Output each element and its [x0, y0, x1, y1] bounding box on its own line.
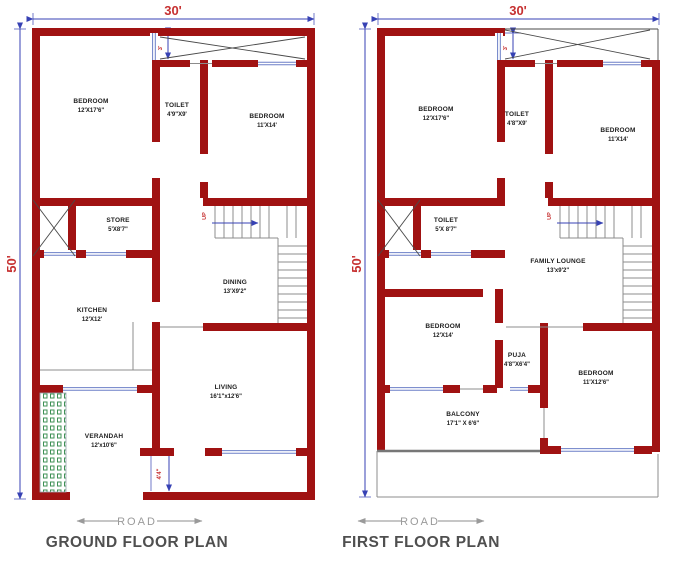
ground-footer: ROAD GROUND FLOOR PLAN	[46, 516, 228, 551]
room-label: KITCHEN	[77, 307, 107, 314]
room-label: BEDROOM	[600, 127, 635, 134]
ground-width-dimension: 30'	[164, 3, 182, 18]
room-dims: 12'x10'6"	[91, 443, 117, 449]
room-dims: 5'X8'7"	[108, 227, 128, 233]
floor-plan-drawing: 30' 50' 3' 4'4"	[0, 0, 685, 565]
ground-open-terrace-cross	[160, 37, 305, 59]
ground-up-label: UP	[202, 212, 208, 220]
floor-plan-canvas: 30' 50' 3' 4'4"	[0, 0, 685, 565]
ground-height-dimension: 50'	[4, 255, 19, 273]
room-label: TOILET	[505, 111, 529, 118]
first-height-dimension: 50'	[349, 255, 364, 273]
ground-floor-title: GROUND FLOOR PLAN	[46, 534, 228, 551]
first-room-labels: BEDROOM 12'X17'6" TOILET 4'8"X9' BEDROOM…	[418, 106, 635, 427]
room-dims: 4'8"X9'	[507, 121, 527, 127]
room-dims: 5'X 8'7"	[435, 227, 457, 233]
room-dims: 12'X17'6"	[78, 108, 105, 114]
room-label: LIVING	[215, 384, 238, 391]
room-dims: 16'1"x12'6"	[210, 394, 242, 400]
room-dims: 11'X14'	[608, 137, 628, 143]
room-label: VERANDAH	[85, 433, 124, 440]
first-up-label: UP	[547, 212, 553, 220]
room-dims: 17'1" X 6'6"	[447, 421, 480, 427]
room-label: BALCONY	[446, 411, 480, 418]
room-label: TOILET	[434, 217, 458, 224]
first-open-terrace-cross	[505, 29, 658, 60]
room-label: BEDROOM	[425, 323, 460, 330]
first-strip-dimension: 3'	[503, 45, 509, 50]
first-floor-title: FIRST FLOOR PLAN	[342, 534, 500, 551]
first-windows	[389, 33, 641, 454]
first-width-dimension: 30'	[509, 3, 527, 18]
first-footer: ROAD FIRST FLOOR PLAN	[342, 516, 500, 551]
room-dims: 12'X14'	[433, 333, 454, 339]
room-dims: 13'x9'2"	[547, 268, 570, 274]
ground-porch-dimension: 4'4"	[157, 468, 163, 479]
room-dims: 12'X12'	[82, 317, 103, 323]
room-label: STORE	[106, 217, 130, 224]
room-label: BEDROOM	[73, 98, 108, 105]
room-dims: 4'8"X6'4"	[504, 362, 530, 368]
room-dims: 13'X9'2"	[223, 289, 246, 295]
ground-verandah-planter	[40, 393, 66, 492]
ground-room-labels: BEDROOM 12'X17'6" TOILET 4'9"X9' BEDROOM…	[73, 98, 284, 449]
room-label: BEDROOM	[418, 106, 453, 113]
room-label: BEDROOM	[249, 113, 284, 120]
room-dims: 11'X14'	[257, 123, 277, 129]
room-label: FAMILY LOUNGE	[530, 258, 586, 265]
room-label: TOILET	[165, 102, 189, 109]
first-road-label: ROAD	[400, 516, 440, 528]
ground-strip-dimension: 3'	[158, 45, 164, 50]
room-label: PUJA	[508, 352, 526, 359]
room-dims: 12'X17'6"	[423, 116, 450, 122]
room-dims: 11'X12'6"	[583, 380, 609, 386]
room-label: BEDROOM	[578, 370, 613, 377]
ground-windows	[44, 33, 296, 456]
ground-floor-plan: 30' 50' 3' 4'4"	[4, 3, 315, 551]
ground-staircase	[215, 206, 307, 323]
first-floor-plan: 30' 50' 3'	[342, 3, 660, 551]
ground-road-label: ROAD	[117, 516, 157, 528]
room-label: DINING	[223, 279, 247, 286]
room-dims: 4'9"X9'	[167, 112, 187, 118]
